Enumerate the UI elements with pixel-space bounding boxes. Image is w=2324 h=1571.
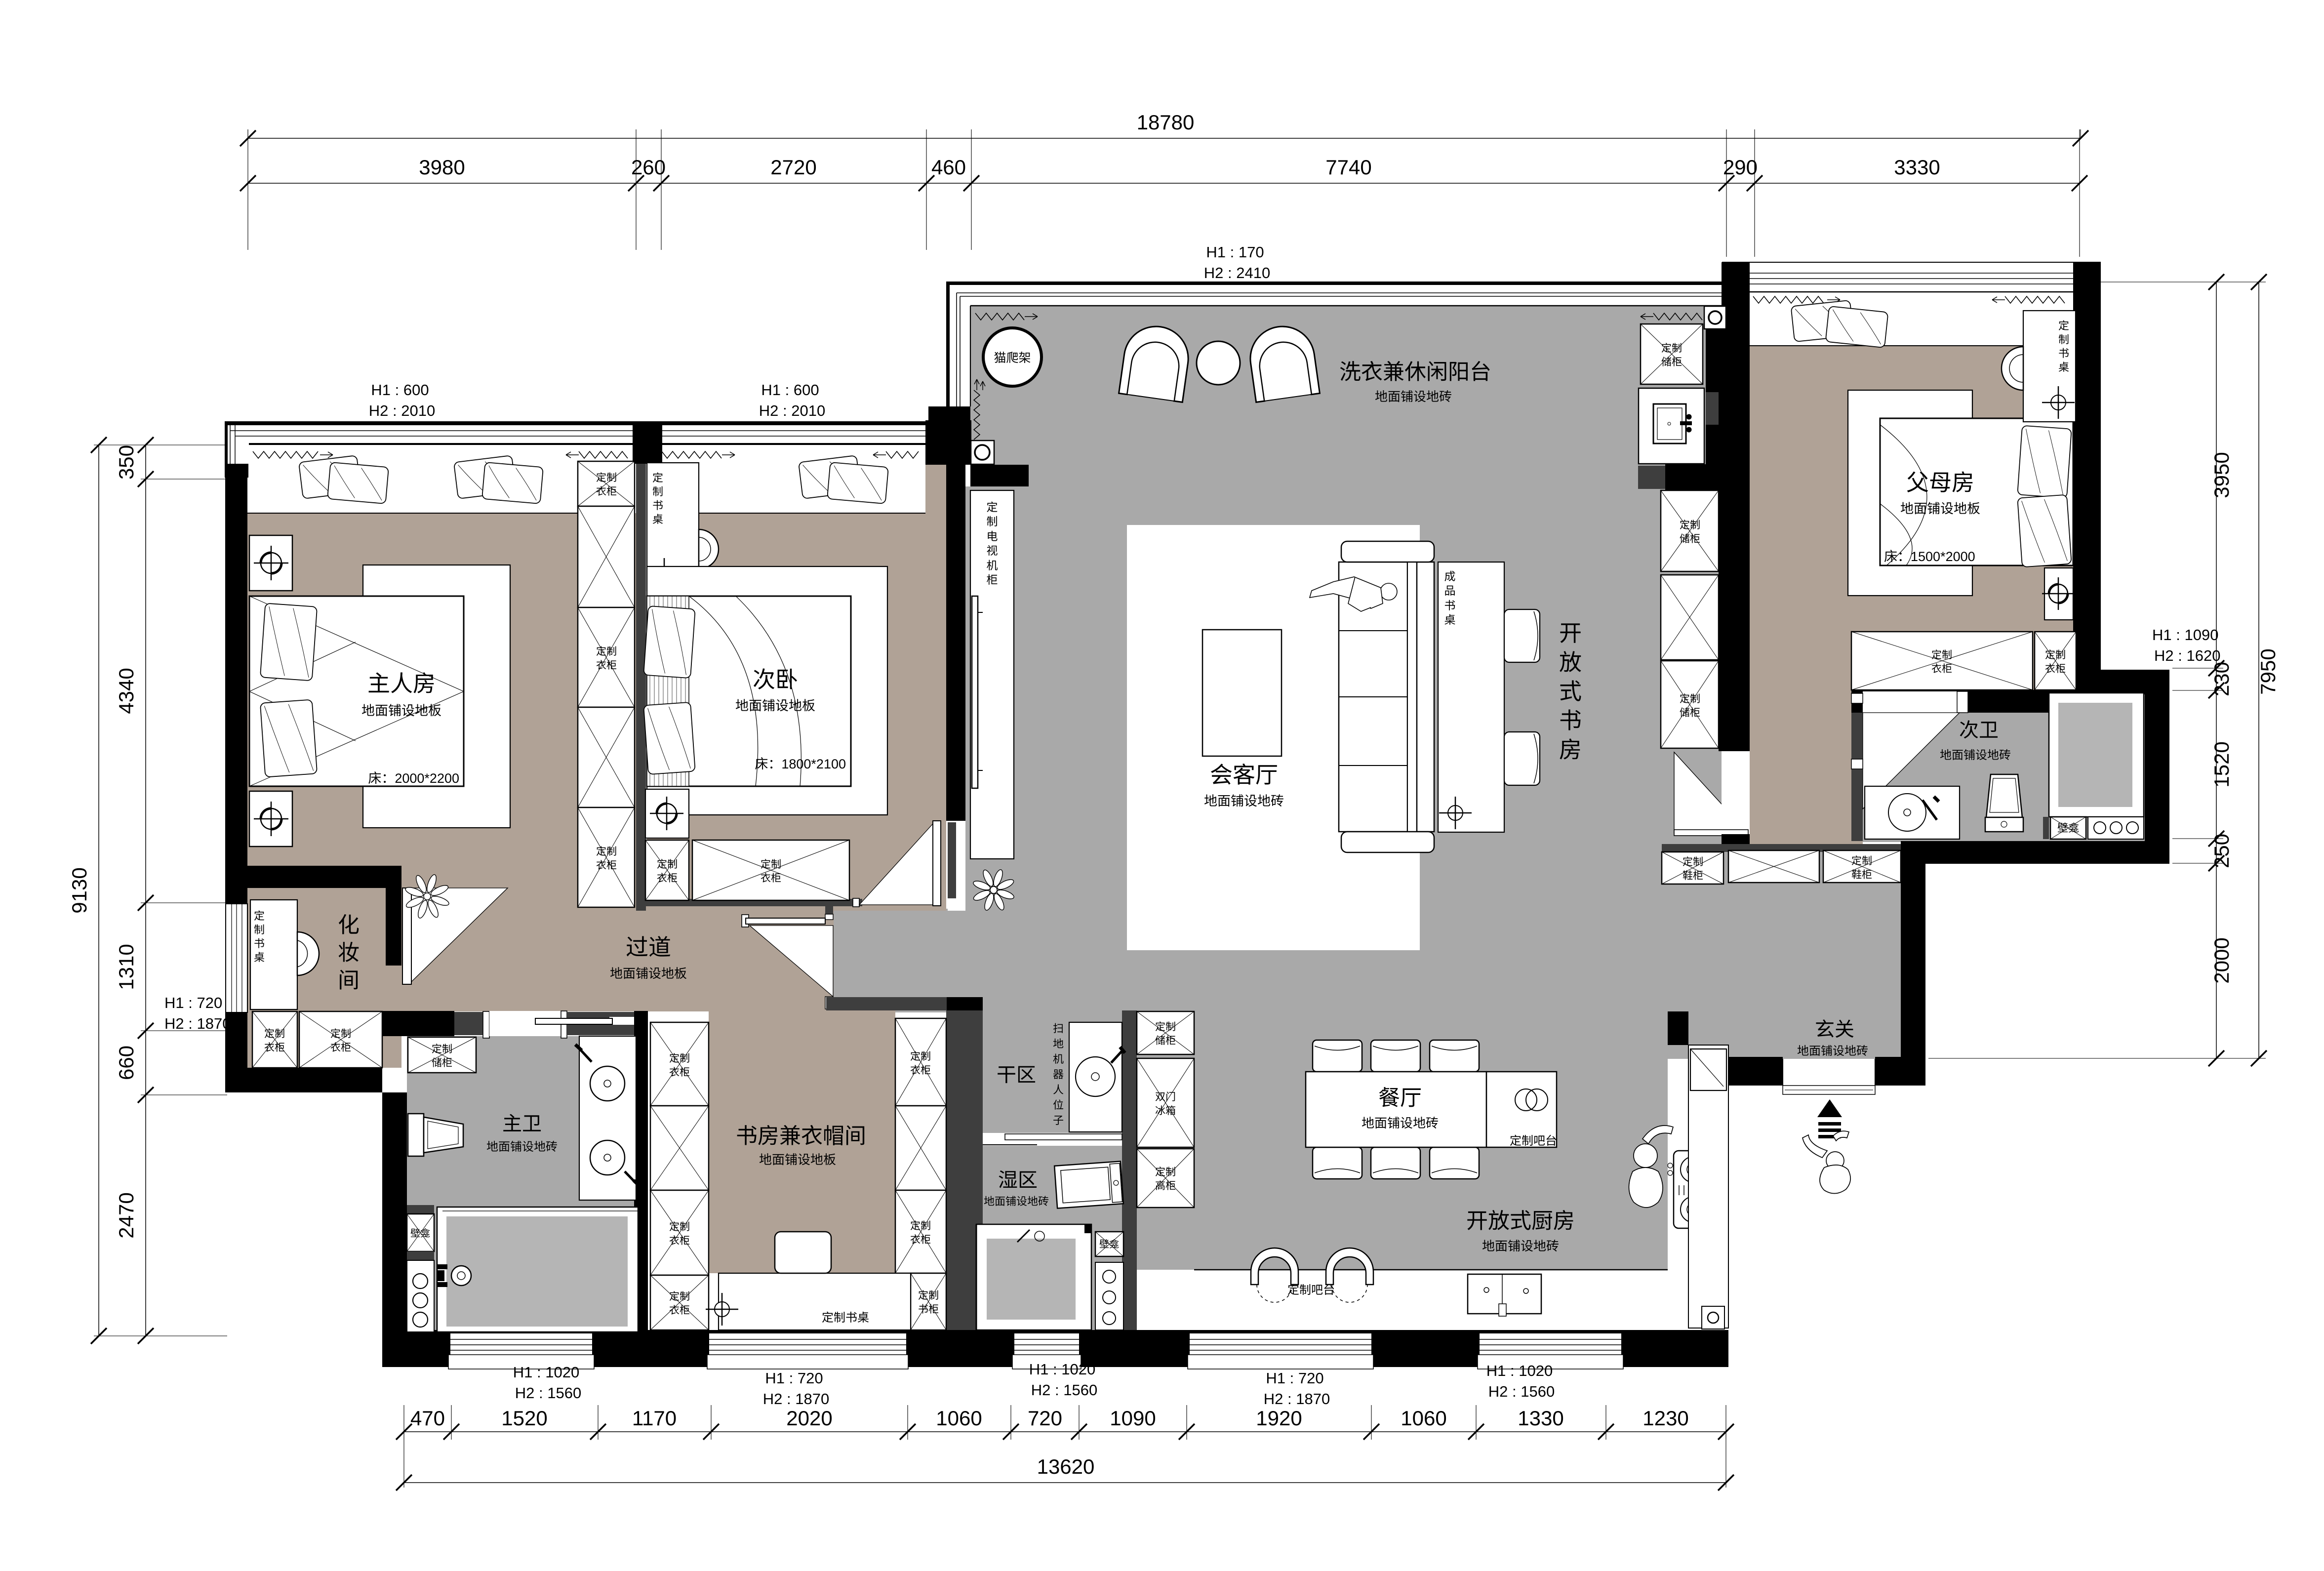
svg-text:成: 成 — [1444, 570, 1456, 583]
svg-text:干区: 干区 — [997, 1064, 1036, 1086]
svg-text:H2 : 1560: H2 : 1560 — [1488, 1383, 1555, 1400]
svg-text:H2 : 1870: H2 : 1870 — [164, 1015, 231, 1032]
svg-text:660: 660 — [115, 1046, 138, 1080]
svg-text:式: 式 — [1559, 679, 1582, 704]
svg-text:衣柜: 衣柜 — [669, 1305, 690, 1316]
svg-text:桌: 桌 — [254, 951, 265, 964]
svg-text:书: 书 — [1444, 599, 1456, 612]
svg-text:地面铺设地砖: 地面铺设地砖 — [486, 1140, 558, 1154]
svg-text:H2 : 2010: H2 : 2010 — [369, 402, 435, 419]
svg-text:定: 定 — [254, 910, 265, 922]
svg-text:定制: 定制 — [669, 1291, 690, 1302]
svg-text:定制吧台: 定制吧台 — [1287, 1284, 1335, 1297]
svg-text:妆: 妆 — [338, 941, 360, 965]
svg-text:器: 器 — [1053, 1068, 1064, 1081]
svg-text:制: 制 — [652, 485, 663, 498]
svg-text:1090: 1090 — [1110, 1407, 1156, 1430]
svg-text:定制: 定制 — [918, 1290, 939, 1301]
svg-text:H1 : 720: H1 : 720 — [164, 994, 222, 1011]
svg-text:床：1500*2000: 床：1500*2000 — [1884, 549, 1975, 564]
svg-text:机: 机 — [987, 559, 998, 572]
svg-text:地面铺设地板: 地面铺设地板 — [759, 1152, 836, 1167]
svg-text:鞋柜: 鞋柜 — [1851, 869, 1872, 881]
svg-text:2720: 2720 — [770, 156, 816, 179]
svg-text:餐厅: 餐厅 — [1378, 1086, 1422, 1110]
svg-text:鞋柜: 鞋柜 — [1683, 870, 1703, 882]
svg-text:3950: 3950 — [2210, 452, 2233, 498]
svg-text:定制: 定制 — [669, 1053, 690, 1064]
svg-text:H1 : 1020: H1 : 1020 — [1029, 1361, 1095, 1378]
svg-text:3330: 3330 — [1894, 156, 1940, 179]
svg-text:壁龛: 壁龛 — [1099, 1239, 1119, 1250]
svg-text:扫: 扫 — [1053, 1022, 1064, 1035]
svg-text:储柜: 储柜 — [1155, 1035, 1176, 1047]
svg-text:房: 房 — [1559, 737, 1582, 763]
svg-text:470: 470 — [410, 1407, 445, 1430]
svg-text:H1 : 720: H1 : 720 — [1266, 1370, 1323, 1387]
svg-text:2470: 2470 — [115, 1192, 138, 1238]
svg-text:H1 : 1090: H1 : 1090 — [2152, 626, 2218, 644]
svg-text:1330: 1330 — [1518, 1407, 1563, 1430]
svg-text:18780: 18780 — [1137, 111, 1195, 134]
svg-text:4340: 4340 — [115, 668, 138, 714]
svg-text:定制: 定制 — [596, 472, 617, 483]
svg-text:H2 : 2410: H2 : 2410 — [1204, 264, 1270, 282]
svg-text:1060: 1060 — [936, 1407, 982, 1430]
svg-text:13620: 13620 — [1037, 1455, 1095, 1478]
svg-text:子: 子 — [1053, 1114, 1064, 1127]
svg-text:定制: 定制 — [910, 1051, 931, 1062]
svg-text:床：2000*2200: 床：2000*2200 — [368, 771, 459, 786]
svg-text:1230: 1230 — [1643, 1407, 1688, 1430]
svg-text:书柜: 书柜 — [918, 1304, 939, 1315]
svg-text:720: 720 — [1028, 1407, 1062, 1430]
svg-text:定: 定 — [2058, 320, 2069, 332]
svg-text:书: 书 — [2058, 347, 2069, 360]
svg-text:壁龛: 壁龛 — [410, 1228, 430, 1239]
svg-text:次卧: 次卧 — [753, 667, 798, 692]
svg-text:7950: 7950 — [2256, 648, 2280, 694]
svg-text:桌: 桌 — [2058, 361, 2069, 373]
svg-text:定制: 定制 — [1931, 649, 1952, 661]
svg-text:定制: 定制 — [657, 859, 678, 870]
svg-text:床：1800*2100: 床：1800*2100 — [755, 757, 846, 771]
svg-text:衣柜: 衣柜 — [1931, 663, 1952, 675]
svg-text:2020: 2020 — [786, 1407, 832, 1430]
svg-text:H2 : 1560: H2 : 1560 — [515, 1384, 581, 1402]
svg-text:化: 化 — [338, 913, 360, 937]
svg-text:H1 : 1020: H1 : 1020 — [1486, 1362, 1553, 1379]
svg-text:衣柜: 衣柜 — [596, 486, 617, 497]
svg-text:定制: 定制 — [1680, 520, 1700, 531]
svg-text:定制: 定制 — [1661, 343, 1682, 354]
svg-text:定制: 定制 — [761, 859, 781, 870]
svg-text:290: 290 — [1723, 156, 1758, 179]
svg-text:H2 : 1870: H2 : 1870 — [763, 1390, 829, 1408]
svg-text:定制: 定制 — [432, 1044, 452, 1055]
svg-text:高柜: 高柜 — [1155, 1180, 1176, 1192]
svg-text:品: 品 — [1444, 584, 1456, 597]
svg-text:湿区: 湿区 — [998, 1169, 1038, 1191]
svg-text:间: 间 — [338, 968, 360, 993]
svg-text:书房兼衣帽间: 书房兼衣帽间 — [736, 1124, 866, 1148]
svg-text:地面铺设地砖: 地面铺设地砖 — [1204, 794, 1284, 808]
svg-text:地面铺设地板: 地面铺设地板 — [735, 698, 815, 713]
svg-text:地面铺设地砖: 地面铺设地砖 — [1940, 749, 2011, 762]
svg-text:定制: 定制 — [1155, 1167, 1176, 1178]
svg-text:定制: 定制 — [910, 1220, 931, 1232]
svg-text:定制: 定制 — [669, 1221, 690, 1233]
svg-text:储柜: 储柜 — [432, 1057, 452, 1069]
svg-text:制: 制 — [2058, 333, 2069, 346]
svg-text:衣柜: 衣柜 — [910, 1234, 931, 1246]
svg-text:H2 : 2010: H2 : 2010 — [759, 402, 825, 419]
svg-text:定制: 定制 — [1851, 855, 1872, 867]
svg-text:位: 位 — [1053, 1099, 1064, 1111]
svg-text:父母房: 父母房 — [1906, 470, 1974, 495]
svg-text:机: 机 — [1053, 1053, 1064, 1065]
svg-text:定制: 定制 — [596, 646, 617, 657]
svg-text:猫爬架: 猫爬架 — [994, 351, 1031, 365]
svg-text:230: 230 — [2210, 662, 2233, 696]
svg-text:H1 : 600: H1 : 600 — [371, 381, 429, 399]
svg-text:H1 : 170: H1 : 170 — [1206, 243, 1264, 261]
svg-text:地面铺设地砖: 地面铺设地砖 — [1482, 1239, 1559, 1253]
svg-text:定制吧台: 定制吧台 — [1510, 1134, 1557, 1148]
svg-text:350: 350 — [115, 445, 138, 480]
svg-text:制: 制 — [254, 924, 265, 936]
svg-text:定制: 定制 — [330, 1028, 351, 1040]
svg-text:3980: 3980 — [419, 156, 465, 179]
svg-text:桌: 桌 — [1444, 613, 1456, 626]
svg-text:2000: 2000 — [2210, 937, 2233, 983]
svg-text:地面铺设地板: 地面铺设地板 — [361, 703, 441, 718]
svg-text:衣柜: 衣柜 — [264, 1042, 285, 1053]
svg-text:双门: 双门 — [1155, 1091, 1176, 1103]
svg-text:制: 制 — [987, 515, 998, 528]
svg-text:衣柜: 衣柜 — [596, 660, 617, 671]
svg-text:书: 书 — [1559, 708, 1582, 733]
svg-text:书: 书 — [652, 499, 663, 512]
svg-text:9130: 9130 — [68, 867, 91, 913]
svg-text:地: 地 — [1053, 1038, 1064, 1050]
svg-text:460: 460 — [931, 156, 966, 179]
svg-text:开: 开 — [1559, 620, 1582, 646]
svg-text:人: 人 — [1053, 1084, 1064, 1096]
svg-text:衣柜: 衣柜 — [669, 1067, 690, 1078]
svg-text:储柜: 储柜 — [1661, 357, 1682, 368]
svg-text:1920: 1920 — [1256, 1407, 1302, 1430]
svg-text:洗衣兼休闲阳台: 洗衣兼休闲阳台 — [1339, 360, 1491, 384]
svg-text:玄关: 玄关 — [1815, 1019, 1854, 1041]
svg-text:定制: 定制 — [1680, 693, 1700, 705]
svg-text:衣柜: 衣柜 — [761, 873, 781, 884]
svg-text:H1 : 600: H1 : 600 — [761, 381, 819, 399]
svg-text:开放式厨房: 开放式厨房 — [1466, 1209, 1575, 1233]
svg-text:衣柜: 衣柜 — [596, 860, 617, 871]
svg-text:地面铺设地板: 地面铺设地板 — [610, 966, 687, 981]
svg-text:次卫: 次卫 — [1959, 720, 1999, 741]
svg-text:7740: 7740 — [1325, 156, 1371, 179]
svg-text:会客厅: 会客厅 — [1210, 762, 1278, 788]
svg-text:衣柜: 衣柜 — [2045, 663, 2066, 675]
svg-text:H1 : 720: H1 : 720 — [765, 1370, 823, 1387]
svg-text:H2 : 1870: H2 : 1870 — [1264, 1390, 1330, 1408]
svg-text:储柜: 储柜 — [1680, 533, 1700, 545]
svg-text:H1 : 1020: H1 : 1020 — [513, 1364, 579, 1381]
svg-text:定制: 定制 — [1155, 1021, 1176, 1033]
svg-text:衣柜: 衣柜 — [669, 1235, 690, 1247]
svg-text:主卫: 主卫 — [502, 1113, 542, 1135]
svg-text:过道: 过道 — [626, 934, 671, 960]
svg-text:定: 定 — [987, 501, 998, 514]
svg-text:定制: 定制 — [264, 1028, 285, 1040]
svg-text:1060: 1060 — [1401, 1407, 1446, 1430]
svg-text:定制: 定制 — [1683, 856, 1703, 868]
svg-text:衣柜: 衣柜 — [657, 873, 678, 884]
svg-text:衣柜: 衣柜 — [910, 1065, 931, 1076]
svg-text:柜: 柜 — [987, 573, 998, 586]
svg-text:1520: 1520 — [501, 1407, 547, 1430]
svg-text:定制: 定制 — [2045, 649, 2066, 661]
svg-text:1520: 1520 — [2210, 741, 2233, 787]
svg-text:储柜: 储柜 — [1680, 707, 1700, 719]
svg-text:主人房: 主人房 — [367, 671, 436, 696]
svg-text:地面铺设地砖: 地面铺设地砖 — [1375, 389, 1452, 404]
svg-text:定制: 定制 — [596, 846, 617, 857]
svg-text:H2 : 1560: H2 : 1560 — [1031, 1381, 1097, 1399]
svg-text:定制书桌: 定制书桌 — [822, 1311, 869, 1325]
svg-text:地面铺设地板: 地面铺设地板 — [1900, 501, 1980, 516]
svg-text:衣柜: 衣柜 — [330, 1042, 351, 1053]
svg-text:视: 视 — [987, 544, 998, 557]
svg-text:地面铺设地砖: 地面铺设地砖 — [984, 1195, 1049, 1208]
svg-text:1310: 1310 — [115, 944, 138, 990]
svg-text:H2 : 1620: H2 : 1620 — [2154, 647, 2220, 664]
svg-text:书: 书 — [254, 937, 265, 950]
svg-text:地面铺设地砖: 地面铺设地砖 — [1362, 1116, 1439, 1130]
svg-text:电: 电 — [987, 530, 998, 543]
svg-text:冰箱: 冰箱 — [1155, 1105, 1176, 1117]
svg-text:定: 定 — [652, 472, 663, 484]
svg-text:桌: 桌 — [652, 513, 663, 525]
svg-text:壁龛: 壁龛 — [2057, 822, 2079, 834]
svg-text:地面铺设地砖: 地面铺设地砖 — [1797, 1045, 1868, 1058]
svg-text:放: 放 — [1559, 649, 1582, 675]
svg-text:1170: 1170 — [632, 1407, 677, 1430]
